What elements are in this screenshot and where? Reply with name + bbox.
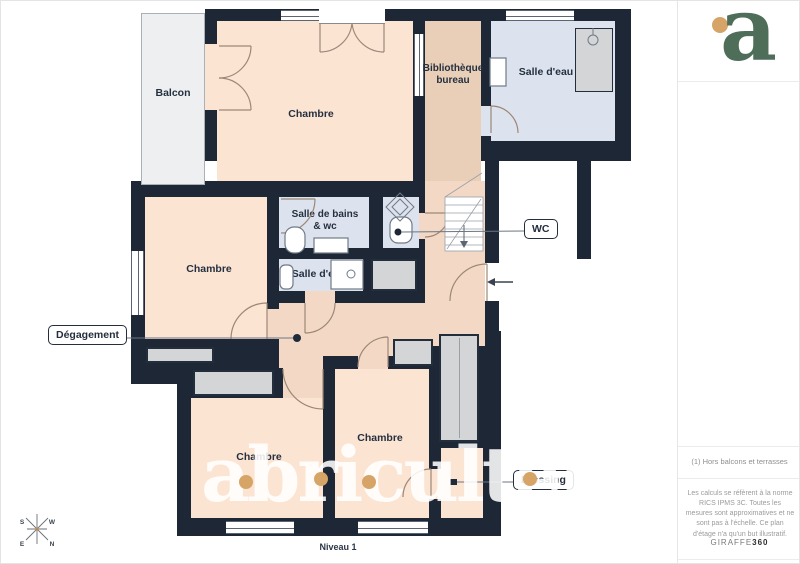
window-symbol xyxy=(131,251,144,315)
brand-logo-letter: a xyxy=(720,1,777,73)
room-wc xyxy=(383,197,419,248)
floorplan-page: S W E N Balcon Chambre Bibliothèque bure… xyxy=(0,0,800,564)
closet-rail xyxy=(459,338,460,438)
room-label-bibliotheque: Bibliothèque bureau xyxy=(423,63,484,87)
closet-dressing-wardrobe xyxy=(439,334,479,442)
sidebar-disclaimer: Les calculs se réfèrent à la norme RICS … xyxy=(685,489,795,540)
room-bibliotheque xyxy=(425,21,481,181)
compass-e: E xyxy=(20,541,25,548)
compass-icon: S W E N xyxy=(20,514,56,548)
room-label-salle-de-bains: Salle de bains & wc xyxy=(292,209,359,233)
sidebar-note: (1) Hors balcons et terrasses xyxy=(682,457,797,466)
divider xyxy=(678,478,800,479)
brand-logo: a xyxy=(678,1,800,81)
room-label-salle-eau-mid: Salle d'eau xyxy=(292,268,346,280)
room-label-line: & wc xyxy=(292,221,359,233)
room-label-line: bureau xyxy=(423,75,484,87)
provider-suffix: 360 xyxy=(752,538,768,547)
room-label-chambre-bottom-mid: Chambre xyxy=(357,432,403,444)
wall-segment xyxy=(485,141,499,336)
wall-segment xyxy=(577,159,591,259)
room-label-chambre-bottom-left: Chambre xyxy=(236,451,282,463)
sidebar: a (1) Hors balcons et terrasses Les calc… xyxy=(677,1,800,563)
room-label-line: Salle de bains xyxy=(292,209,359,221)
room-label-balcon: Balcon xyxy=(155,87,190,99)
compass-s: S xyxy=(20,519,25,526)
door-opening xyxy=(419,213,425,239)
balcony-area xyxy=(141,13,205,185)
room-chambre-top xyxy=(217,21,413,181)
divider xyxy=(678,446,800,447)
door-opening xyxy=(429,469,441,499)
door-opening xyxy=(283,356,323,398)
window-symbol xyxy=(506,10,574,21)
door-opening xyxy=(481,106,493,136)
watermark-dot xyxy=(523,472,537,486)
divider xyxy=(678,81,800,82)
watermark-dot xyxy=(362,475,376,489)
shower-tray xyxy=(575,28,613,92)
door-opening xyxy=(267,309,279,339)
closet xyxy=(193,370,274,396)
callout-wc: WC xyxy=(524,219,558,239)
closet xyxy=(371,259,417,291)
provider-name: GIRAFFE xyxy=(710,538,752,547)
compass-w: W xyxy=(49,519,56,526)
door-opening xyxy=(205,44,217,110)
closet xyxy=(146,347,214,363)
entry-door-opening xyxy=(485,263,499,301)
level-label: Niveau 1 xyxy=(298,542,378,552)
watermark-dot xyxy=(314,472,328,486)
divider xyxy=(678,559,800,560)
closet xyxy=(393,339,433,366)
compass-n: N xyxy=(50,541,55,548)
window-symbol xyxy=(281,10,319,21)
door-opening xyxy=(358,356,388,369)
room-label-chambre-left: Chambre xyxy=(186,263,232,275)
watermark-dot xyxy=(239,475,253,489)
room-dressing xyxy=(441,448,483,518)
room-label-chambre-top: Chambre xyxy=(288,108,334,120)
window-symbol xyxy=(358,521,428,534)
provider-credit: GIRAFFE360 xyxy=(678,538,800,547)
room-label-salle-eau-top: Salle d'eau xyxy=(519,66,573,78)
window-symbol xyxy=(226,521,294,534)
room-label-line: Bibliothèque xyxy=(423,63,484,75)
door-opening xyxy=(305,291,335,303)
callout-degagement: Dégagement xyxy=(48,325,127,345)
door-opening xyxy=(319,9,385,24)
